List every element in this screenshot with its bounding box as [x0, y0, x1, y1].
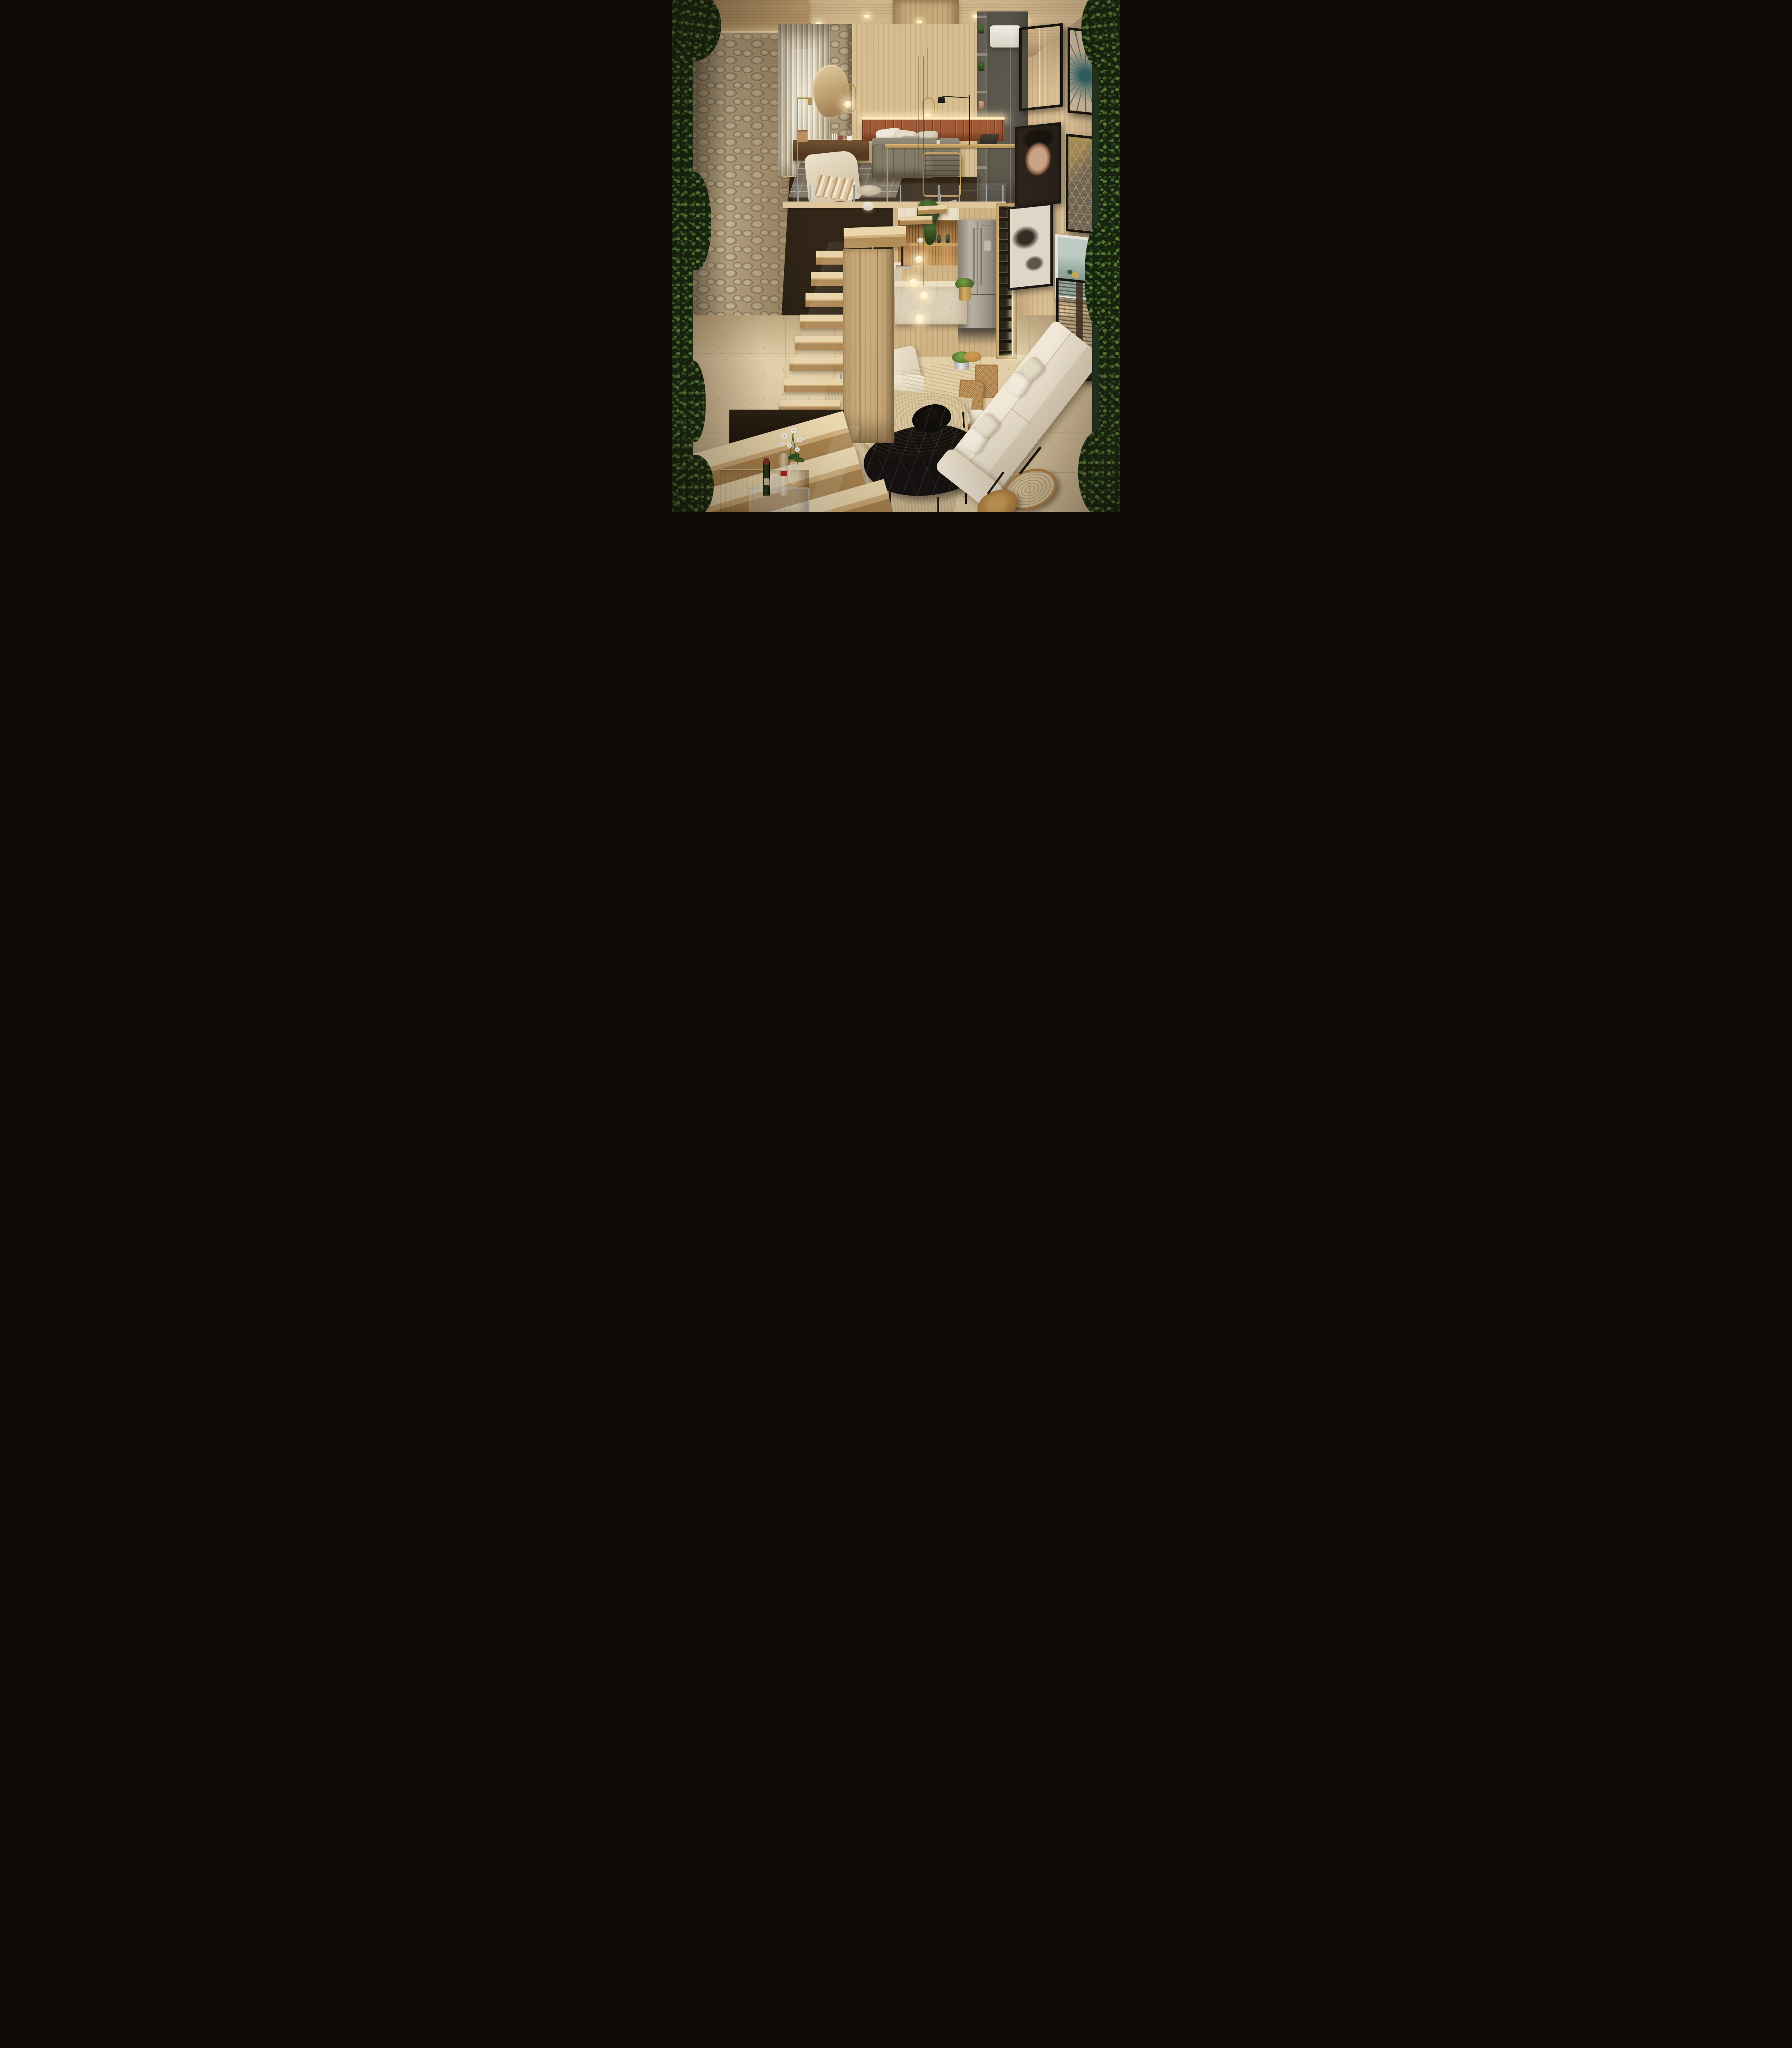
- green-vase: [937, 234, 941, 243]
- pendant-cord: [928, 48, 928, 98]
- coffee-table-leg: [937, 497, 939, 512]
- orchid-flower: [787, 443, 792, 448]
- floor-lamp-stem: [797, 99, 798, 193]
- pendant-cord: [923, 57, 924, 286]
- decor-box-teal: [831, 134, 838, 140]
- fridge-handle: [980, 228, 982, 285]
- shell-ornament: [917, 238, 924, 243]
- task-lamp-shade: [937, 97, 946, 103]
- pendant-globe: [844, 101, 851, 108]
- glow-globe: [920, 292, 928, 300]
- mezzanine-fascia: [783, 202, 1006, 208]
- sofa-seat-seam: [1011, 408, 1031, 424]
- shelf-plant: [978, 25, 984, 34]
- garden-bulge: [1078, 430, 1120, 512]
- orchid-flower: [780, 442, 784, 446]
- rail-post: [986, 185, 987, 202]
- fridge-handle: [973, 228, 975, 285]
- desk-top: [885, 144, 1020, 148]
- under-stair-cabinet: [843, 249, 894, 443]
- rail-post: [1002, 185, 1004, 202]
- ac-unit: [990, 25, 1021, 48]
- art-frame-butterfly: [1008, 202, 1053, 291]
- orchid-flower: [782, 433, 787, 438]
- rail-post: [797, 185, 799, 202]
- rail-post: [900, 185, 901, 202]
- rail-post: [959, 185, 960, 202]
- black-faucet: [901, 246, 903, 266]
- glow-globe: [915, 315, 924, 324]
- fridge-control-panel: [983, 240, 991, 251]
- pencil-cup: [937, 138, 940, 144]
- rail-post: [810, 185, 811, 202]
- fridge-brand-label: Brastemp: [982, 224, 996, 227]
- sofa-end-table: [964, 351, 982, 362]
- orchid-flower: [797, 437, 803, 442]
- orchid-flower: [795, 447, 800, 452]
- dried-pom-plant: [846, 130, 853, 136]
- glow-globe: [915, 256, 923, 263]
- garden-bulge: [679, 360, 706, 442]
- shelf-vase: [979, 101, 984, 109]
- rail-post: [938, 185, 940, 202]
- bottle-capsule: [764, 458, 769, 464]
- sink: [896, 265, 911, 269]
- stair-tread-upper: [900, 216, 933, 225]
- white-cone-pendant: [863, 202, 873, 211]
- stair-tread-upper: [918, 205, 948, 215]
- decanter: [769, 474, 781, 493]
- shopping-bag: [798, 130, 808, 142]
- laptop: [979, 134, 999, 144]
- pendant-cord: [848, 33, 848, 84]
- decor-box-rust: [838, 136, 843, 140]
- recessed-light: [917, 20, 922, 23]
- shelf-plant: [978, 61, 984, 71]
- gold-planter: [959, 287, 971, 301]
- floor-lamp-head: [808, 97, 812, 105]
- green-vase: [946, 234, 950, 243]
- glow-globe: [910, 279, 918, 287]
- rail-post: [853, 185, 855, 202]
- wine-bottle-green: [763, 460, 770, 496]
- bottle-label: [764, 478, 769, 485]
- glass-partition-edge: [1010, 25, 1011, 205]
- orchid-flower: [791, 428, 796, 433]
- stair-glass-spigot: [840, 374, 842, 379]
- loft-interior-render: Brastemp: [672, 0, 1120, 512]
- fridge-door-seam: [977, 221, 977, 295]
- red-label: [781, 471, 787, 476]
- island-front: [895, 287, 967, 324]
- recessed-light: [864, 15, 869, 18]
- art-frame-feather: [1019, 23, 1063, 111]
- task-lamp-pole: [969, 95, 970, 145]
- oval-pendant-lamp: [843, 84, 856, 113]
- pendant-cord: [919, 57, 919, 257]
- art-frame-portrait: [1015, 122, 1061, 208]
- orchid-vase: [789, 462, 799, 484]
